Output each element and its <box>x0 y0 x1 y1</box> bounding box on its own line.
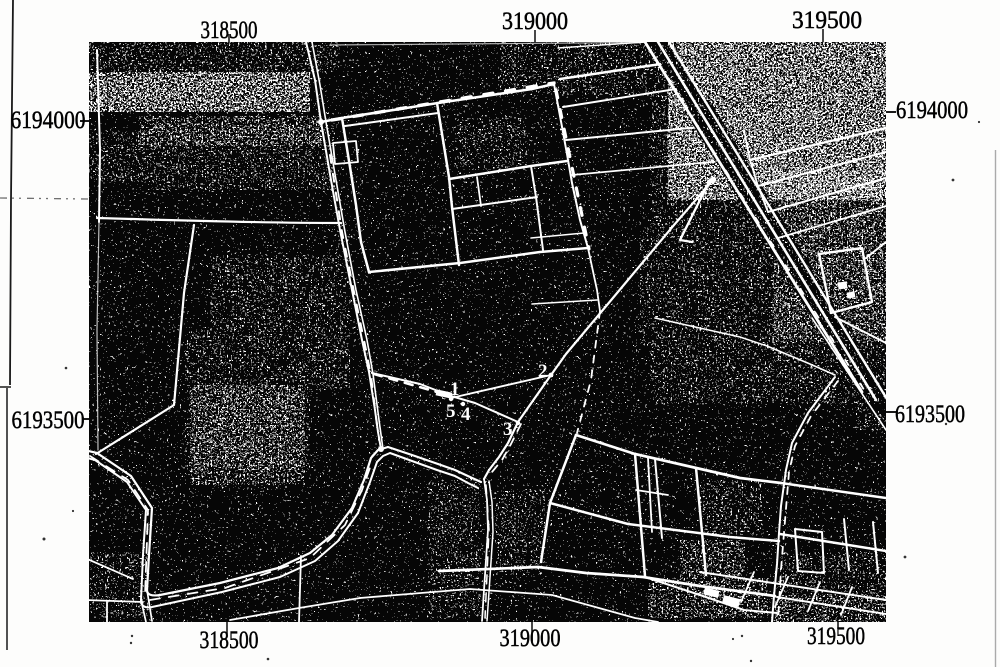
svg-text:318500: 318500 <box>200 627 259 654</box>
svg-text:319500: 319500 <box>792 7 862 34</box>
svg-text:2: 2 <box>538 361 548 382</box>
svg-text:6193500: 6193500 <box>12 407 85 434</box>
svg-text:3: 3 <box>503 419 513 440</box>
svg-text:319000: 319000 <box>500 625 561 652</box>
svg-text:6193500: 6193500 <box>895 401 965 428</box>
svg-text:319000: 319000 <box>502 8 568 35</box>
svg-text:6194000: 6194000 <box>11 107 86 134</box>
svg-text:319500: 319500 <box>807 623 865 650</box>
svg-text:4: 4 <box>461 404 471 425</box>
svg-text:318500: 318500 <box>201 17 258 44</box>
svg-text:6194000: 6194000 <box>896 97 968 124</box>
svg-text:5: 5 <box>446 401 456 422</box>
svg-text:1: 1 <box>450 379 460 400</box>
